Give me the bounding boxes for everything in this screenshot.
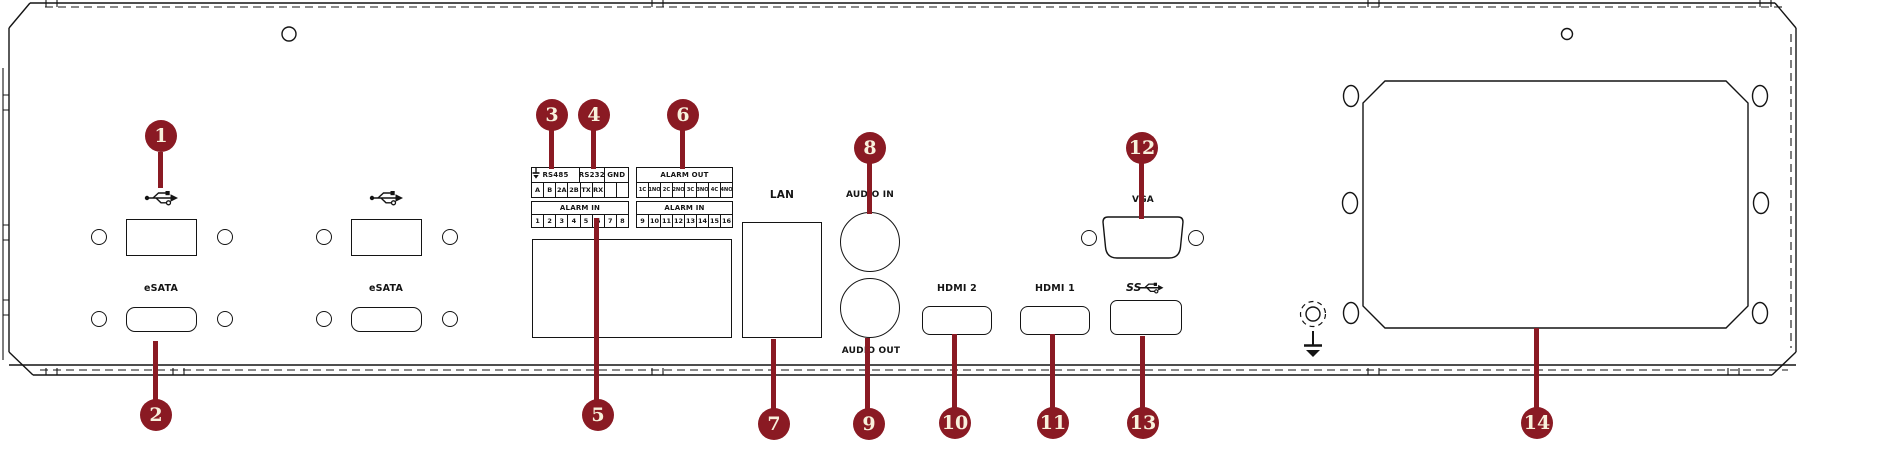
callout-13-marker: 13 xyxy=(1127,407,1159,439)
terminal-header-cell: ALARM IN xyxy=(531,201,629,215)
usb-icon xyxy=(370,191,403,205)
callout-1-leader-line xyxy=(158,152,163,188)
callout-11-marker: 11 xyxy=(1037,407,1069,439)
usb3-port xyxy=(1110,300,1182,335)
callout-5-marker: 5 xyxy=(582,399,614,431)
callout-4-leader-line xyxy=(591,130,596,169)
lan-label: LAN xyxy=(742,189,822,201)
screw-hole xyxy=(217,311,233,327)
terminal-header-cell: RS232 xyxy=(579,167,605,183)
callout-11-leader-line xyxy=(1050,334,1055,408)
terminal-pin-cell: 8 xyxy=(616,214,629,228)
callout-6-leader-line xyxy=(680,130,685,169)
terminal-header-cell: ALARM IN xyxy=(636,201,733,215)
callout-8-leader-line xyxy=(867,163,872,214)
terminal-header-cell: GND xyxy=(604,167,630,183)
esata-label-2: eSATA xyxy=(341,283,431,294)
callout-9-marker: 9 xyxy=(853,408,885,440)
esata-port-1 xyxy=(126,307,197,332)
serial-terminal-block: RS485RS232GNDAB2A2BTXRX xyxy=(532,168,629,198)
callout-14-marker: 14 xyxy=(1521,407,1553,439)
screw-hole xyxy=(316,311,332,327)
earth-terminal-icon xyxy=(1304,331,1322,357)
power-supply-plate xyxy=(1343,81,1769,328)
vga-port xyxy=(1103,217,1183,258)
callout-7-leader-line xyxy=(771,339,776,409)
hdmi1-port xyxy=(1020,306,1090,335)
screw-hole xyxy=(442,311,458,327)
callout-3-marker: 3 xyxy=(536,99,568,131)
screw-hole xyxy=(91,229,107,245)
callout-2-leader-line xyxy=(153,341,158,400)
callout-2-marker: 2 xyxy=(140,399,172,431)
callout-10-leader-line xyxy=(952,334,957,408)
callout-9-leader-line xyxy=(865,338,870,409)
svg-text:SS: SS xyxy=(1126,281,1142,294)
terminal-header-cell: ALARM OUT xyxy=(636,167,733,183)
vent-hole xyxy=(1562,29,1573,40)
audio-in-port xyxy=(840,212,900,272)
terminal-pin-cell: 16 xyxy=(720,214,733,228)
usb3-ss-icon: SS xyxy=(1126,281,1163,294)
alarm-in-terminal-block-2: ALARM IN910111213141516 xyxy=(637,202,733,228)
usb-icon xyxy=(145,191,178,205)
esata-label-1: eSATA xyxy=(116,283,206,294)
audio-out-label: AUDIO OUT xyxy=(826,346,916,356)
esata-port-2 xyxy=(351,307,422,332)
hdmi2-port xyxy=(922,306,992,335)
alarm-out-terminal-block: ALARM OUT1C1NO2C2NO3C3NO4C4NO xyxy=(637,168,733,198)
ground-icon xyxy=(616,182,629,198)
screw-hole xyxy=(91,311,107,327)
callout-10-marker: 10 xyxy=(939,407,971,439)
lan-port xyxy=(742,222,822,338)
vga-screw-hole xyxy=(1081,230,1097,246)
usb-port-2 xyxy=(351,219,422,256)
audio-out-port xyxy=(840,278,900,338)
callout-5-leader-line xyxy=(594,218,599,400)
vga-screw-hole xyxy=(1188,230,1204,246)
screw-hole xyxy=(316,229,332,245)
panel-edge xyxy=(3,0,1796,375)
callout-13-leader-line xyxy=(1140,336,1145,408)
terminal-pin-cell: 4NO xyxy=(720,182,733,198)
screw-hole xyxy=(217,229,233,245)
callout-12-marker: 12 xyxy=(1126,132,1158,164)
callout-3-leader-line xyxy=(549,130,554,169)
callout-6-marker: 6 xyxy=(667,99,699,131)
callout-7-marker: 7 xyxy=(758,408,790,440)
callout-1-marker: 1 xyxy=(145,120,177,152)
chassis-outline: SS xyxy=(0,0,1902,450)
vent-hole xyxy=(282,27,296,41)
alarm-in-terminal-block-1: ALARM IN12345678 xyxy=(532,202,629,228)
hdmi1-label: HDMI 1 xyxy=(1016,283,1094,294)
protective-earth-icon xyxy=(1301,302,1326,327)
rear-panel-diagram: SS xyxy=(0,0,1902,450)
screw-hole xyxy=(442,229,458,245)
terminal-connector-body xyxy=(532,239,732,338)
callout-14-leader-line xyxy=(1534,328,1539,408)
hdmi2-label: HDMI 2 xyxy=(918,283,996,294)
callout-8-marker: 8 xyxy=(854,132,886,164)
callout-4-marker: 4 xyxy=(578,99,610,131)
usb-port-1 xyxy=(126,219,197,256)
callout-12-leader-line xyxy=(1139,163,1144,219)
